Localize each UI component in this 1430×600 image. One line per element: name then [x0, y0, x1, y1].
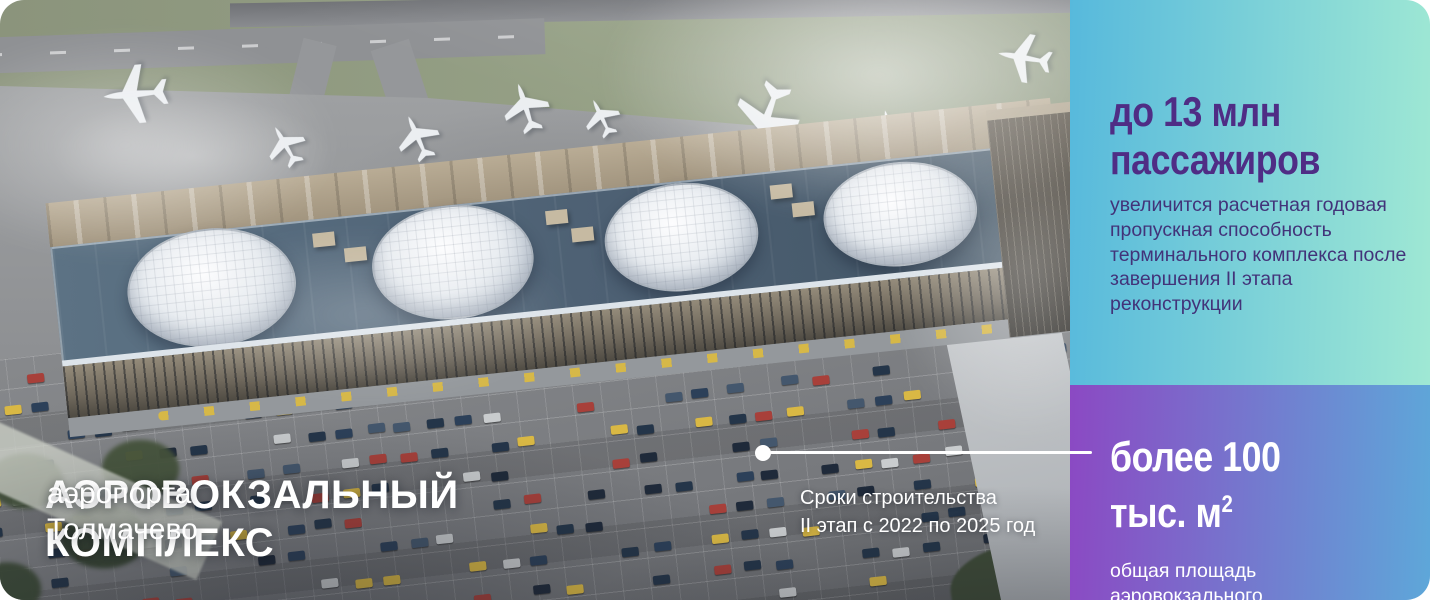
car	[530, 523, 548, 534]
car	[938, 419, 956, 430]
car	[524, 493, 542, 504]
area-stat-panel: более 100 тыс. м2 общая площадь аэровокз…	[1070, 385, 1430, 600]
car	[726, 383, 744, 394]
car	[741, 529, 759, 540]
car	[913, 453, 931, 464]
car	[369, 454, 387, 465]
car	[483, 412, 501, 423]
capacity-stat-panel: до 13 млн пассажиров увеличится расчетна…	[1070, 0, 1430, 385]
car	[851, 429, 869, 440]
car	[431, 448, 449, 459]
car	[368, 423, 386, 434]
car	[695, 417, 713, 428]
car	[335, 428, 353, 439]
car	[877, 427, 895, 438]
car	[709, 503, 727, 514]
car	[743, 560, 761, 571]
car	[493, 499, 511, 510]
car	[639, 452, 657, 463]
rooftop-unit	[571, 226, 594, 242]
car	[491, 471, 509, 482]
car	[665, 392, 683, 403]
construction-dates-caption: Сроки строительства II этап с 2022 по 20…	[800, 485, 1035, 540]
car	[462, 471, 480, 482]
car	[566, 584, 584, 595]
car	[533, 584, 551, 595]
car	[892, 547, 910, 558]
car	[274, 434, 292, 445]
car	[587, 489, 605, 500]
car	[781, 375, 799, 386]
area-stat-heading: более 100 тыс. м2	[1110, 433, 1363, 537]
car	[775, 559, 793, 570]
car	[874, 395, 892, 406]
car	[356, 578, 374, 589]
car	[612, 458, 630, 469]
car	[729, 414, 747, 425]
car	[755, 410, 773, 421]
car	[881, 457, 899, 468]
airport-render-image: АЭРОВОКЗАЛЬНЫЙ КОМПЛЕКС аэропорта Толмач…	[0, 0, 1070, 600]
car	[904, 390, 922, 401]
car	[761, 469, 779, 480]
car	[769, 526, 787, 537]
car	[427, 418, 445, 429]
car	[654, 541, 672, 552]
car	[503, 558, 521, 569]
airplane-icon	[990, 23, 1060, 93]
car	[847, 398, 865, 409]
car	[585, 521, 603, 532]
car	[621, 547, 639, 558]
car	[855, 458, 873, 469]
page-subtitle: аэропорта Толмачево	[47, 476, 198, 548]
callout-dot-icon	[755, 445, 771, 461]
car	[922, 541, 940, 552]
car	[787, 406, 805, 417]
rooftop-unit	[792, 201, 815, 217]
car	[31, 401, 49, 412]
car	[529, 555, 547, 566]
car	[812, 375, 830, 386]
car	[455, 415, 473, 426]
car	[714, 564, 732, 575]
car	[4, 405, 22, 416]
rooftop-unit	[545, 209, 568, 225]
car	[517, 435, 535, 446]
car	[556, 524, 574, 535]
car	[469, 561, 487, 572]
car	[862, 547, 880, 558]
car	[342, 458, 360, 469]
car	[732, 441, 750, 452]
car	[577, 401, 595, 412]
infographic-slide: АЭРОВОКЗАЛЬНЫЙ КОМПЛЕКС аэропорта Толмач…	[0, 0, 1430, 600]
runway-strip	[230, 0, 1070, 27]
car	[711, 533, 729, 544]
car	[26, 372, 44, 383]
car	[821, 464, 839, 475]
car	[736, 471, 754, 482]
rooftop-unit	[770, 183, 793, 199]
capacity-stat-heading: до 13 млн пассажиров	[1110, 88, 1363, 184]
airplane-icon	[97, 55, 175, 133]
area-stat-superscript: 2	[1222, 491, 1233, 518]
car	[767, 497, 785, 508]
car	[491, 442, 509, 453]
car	[644, 484, 662, 495]
car	[383, 575, 401, 586]
capacity-stat-description: увеличится расчетная годовая пропускная …	[1110, 193, 1408, 317]
car	[675, 481, 693, 492]
car	[636, 424, 654, 435]
car	[691, 388, 709, 399]
car	[321, 577, 339, 588]
car	[869, 576, 887, 587]
car	[779, 587, 797, 598]
car	[736, 500, 754, 511]
car	[872, 365, 890, 376]
area-stat-description: общая площадь аэровокзального комплекса …	[1110, 559, 1408, 600]
car	[610, 424, 628, 435]
callout-line	[770, 451, 1092, 454]
rooftop-unit	[344, 246, 367, 262]
car	[400, 452, 418, 463]
car	[653, 574, 671, 585]
car	[393, 421, 411, 432]
rooftop-unit	[312, 231, 335, 247]
area-stat-value: более 100 тыс. м	[1110, 433, 1281, 536]
car	[474, 594, 492, 600]
car	[308, 432, 326, 443]
